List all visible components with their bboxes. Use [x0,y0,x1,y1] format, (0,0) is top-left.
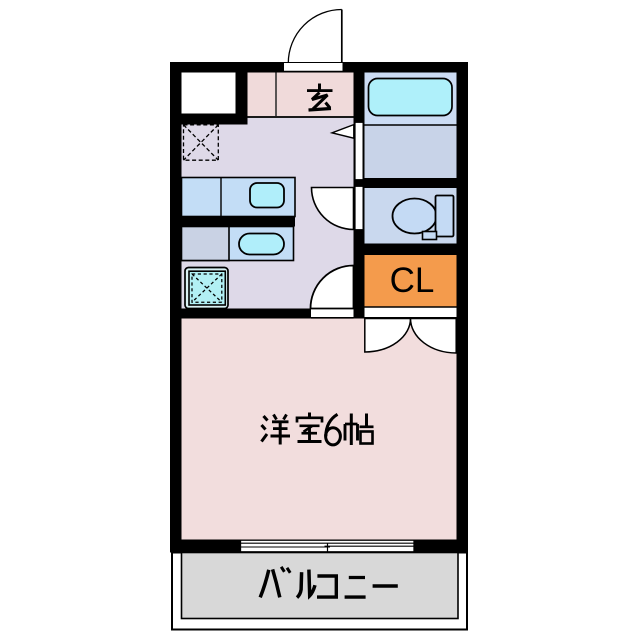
svg-text:CL: CL [390,261,435,300]
